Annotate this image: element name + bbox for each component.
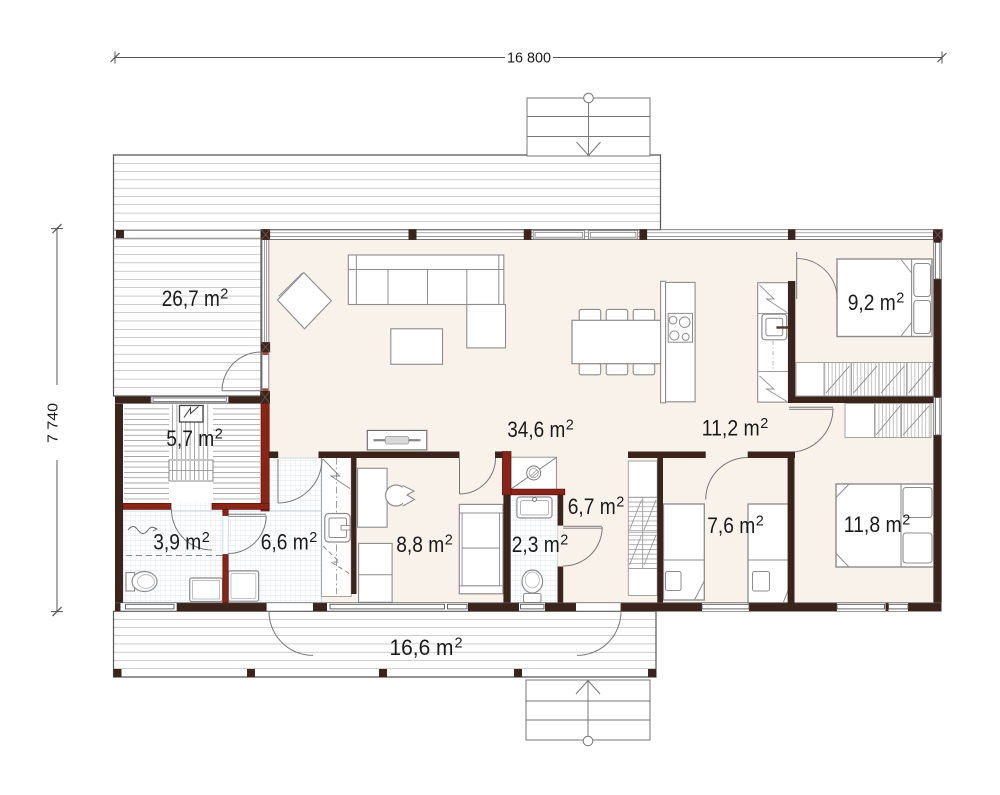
svg-text:2: 2 — [902, 512, 910, 528]
svg-text:16,6 m: 16,6 m — [390, 635, 454, 660]
svg-text:5,7 m: 5,7 m — [166, 426, 214, 451]
svg-text:7,6 m: 7,6 m — [707, 513, 755, 538]
svg-text:16 800: 16 800 — [507, 51, 551, 67]
svg-text:8,8 m: 8,8 m — [396, 532, 444, 557]
svg-text:2: 2 — [445, 533, 453, 549]
svg-text:34,6 m: 34,6 m — [507, 417, 565, 442]
svg-text:3,9 m: 3,9 m — [153, 530, 201, 555]
svg-text:9,2 m: 9,2 m — [848, 290, 896, 315]
svg-text:2,3 m: 2,3 m — [512, 532, 560, 557]
svg-text:7 740: 7 740 — [46, 403, 62, 443]
svg-text:6,6 m: 6,6 m — [261, 530, 309, 555]
svg-text:2: 2 — [455, 636, 463, 652]
svg-text:11,2 m: 11,2 m — [702, 416, 760, 441]
svg-text:6,7 m: 6,7 m — [568, 494, 616, 519]
svg-text:2: 2 — [202, 530, 210, 546]
svg-text:26,7 m: 26,7 m — [162, 286, 220, 311]
svg-text:2: 2 — [560, 533, 568, 549]
svg-text:2: 2 — [215, 427, 223, 443]
svg-text:11,8 m: 11,8 m — [844, 512, 902, 537]
svg-text:2: 2 — [309, 530, 317, 546]
svg-text:2: 2 — [616, 495, 624, 511]
svg-text:2: 2 — [760, 416, 768, 432]
svg-text:2: 2 — [220, 287, 228, 303]
svg-text:2: 2 — [756, 514, 764, 530]
svg-text:2: 2 — [566, 418, 574, 434]
svg-text:2: 2 — [896, 291, 904, 307]
